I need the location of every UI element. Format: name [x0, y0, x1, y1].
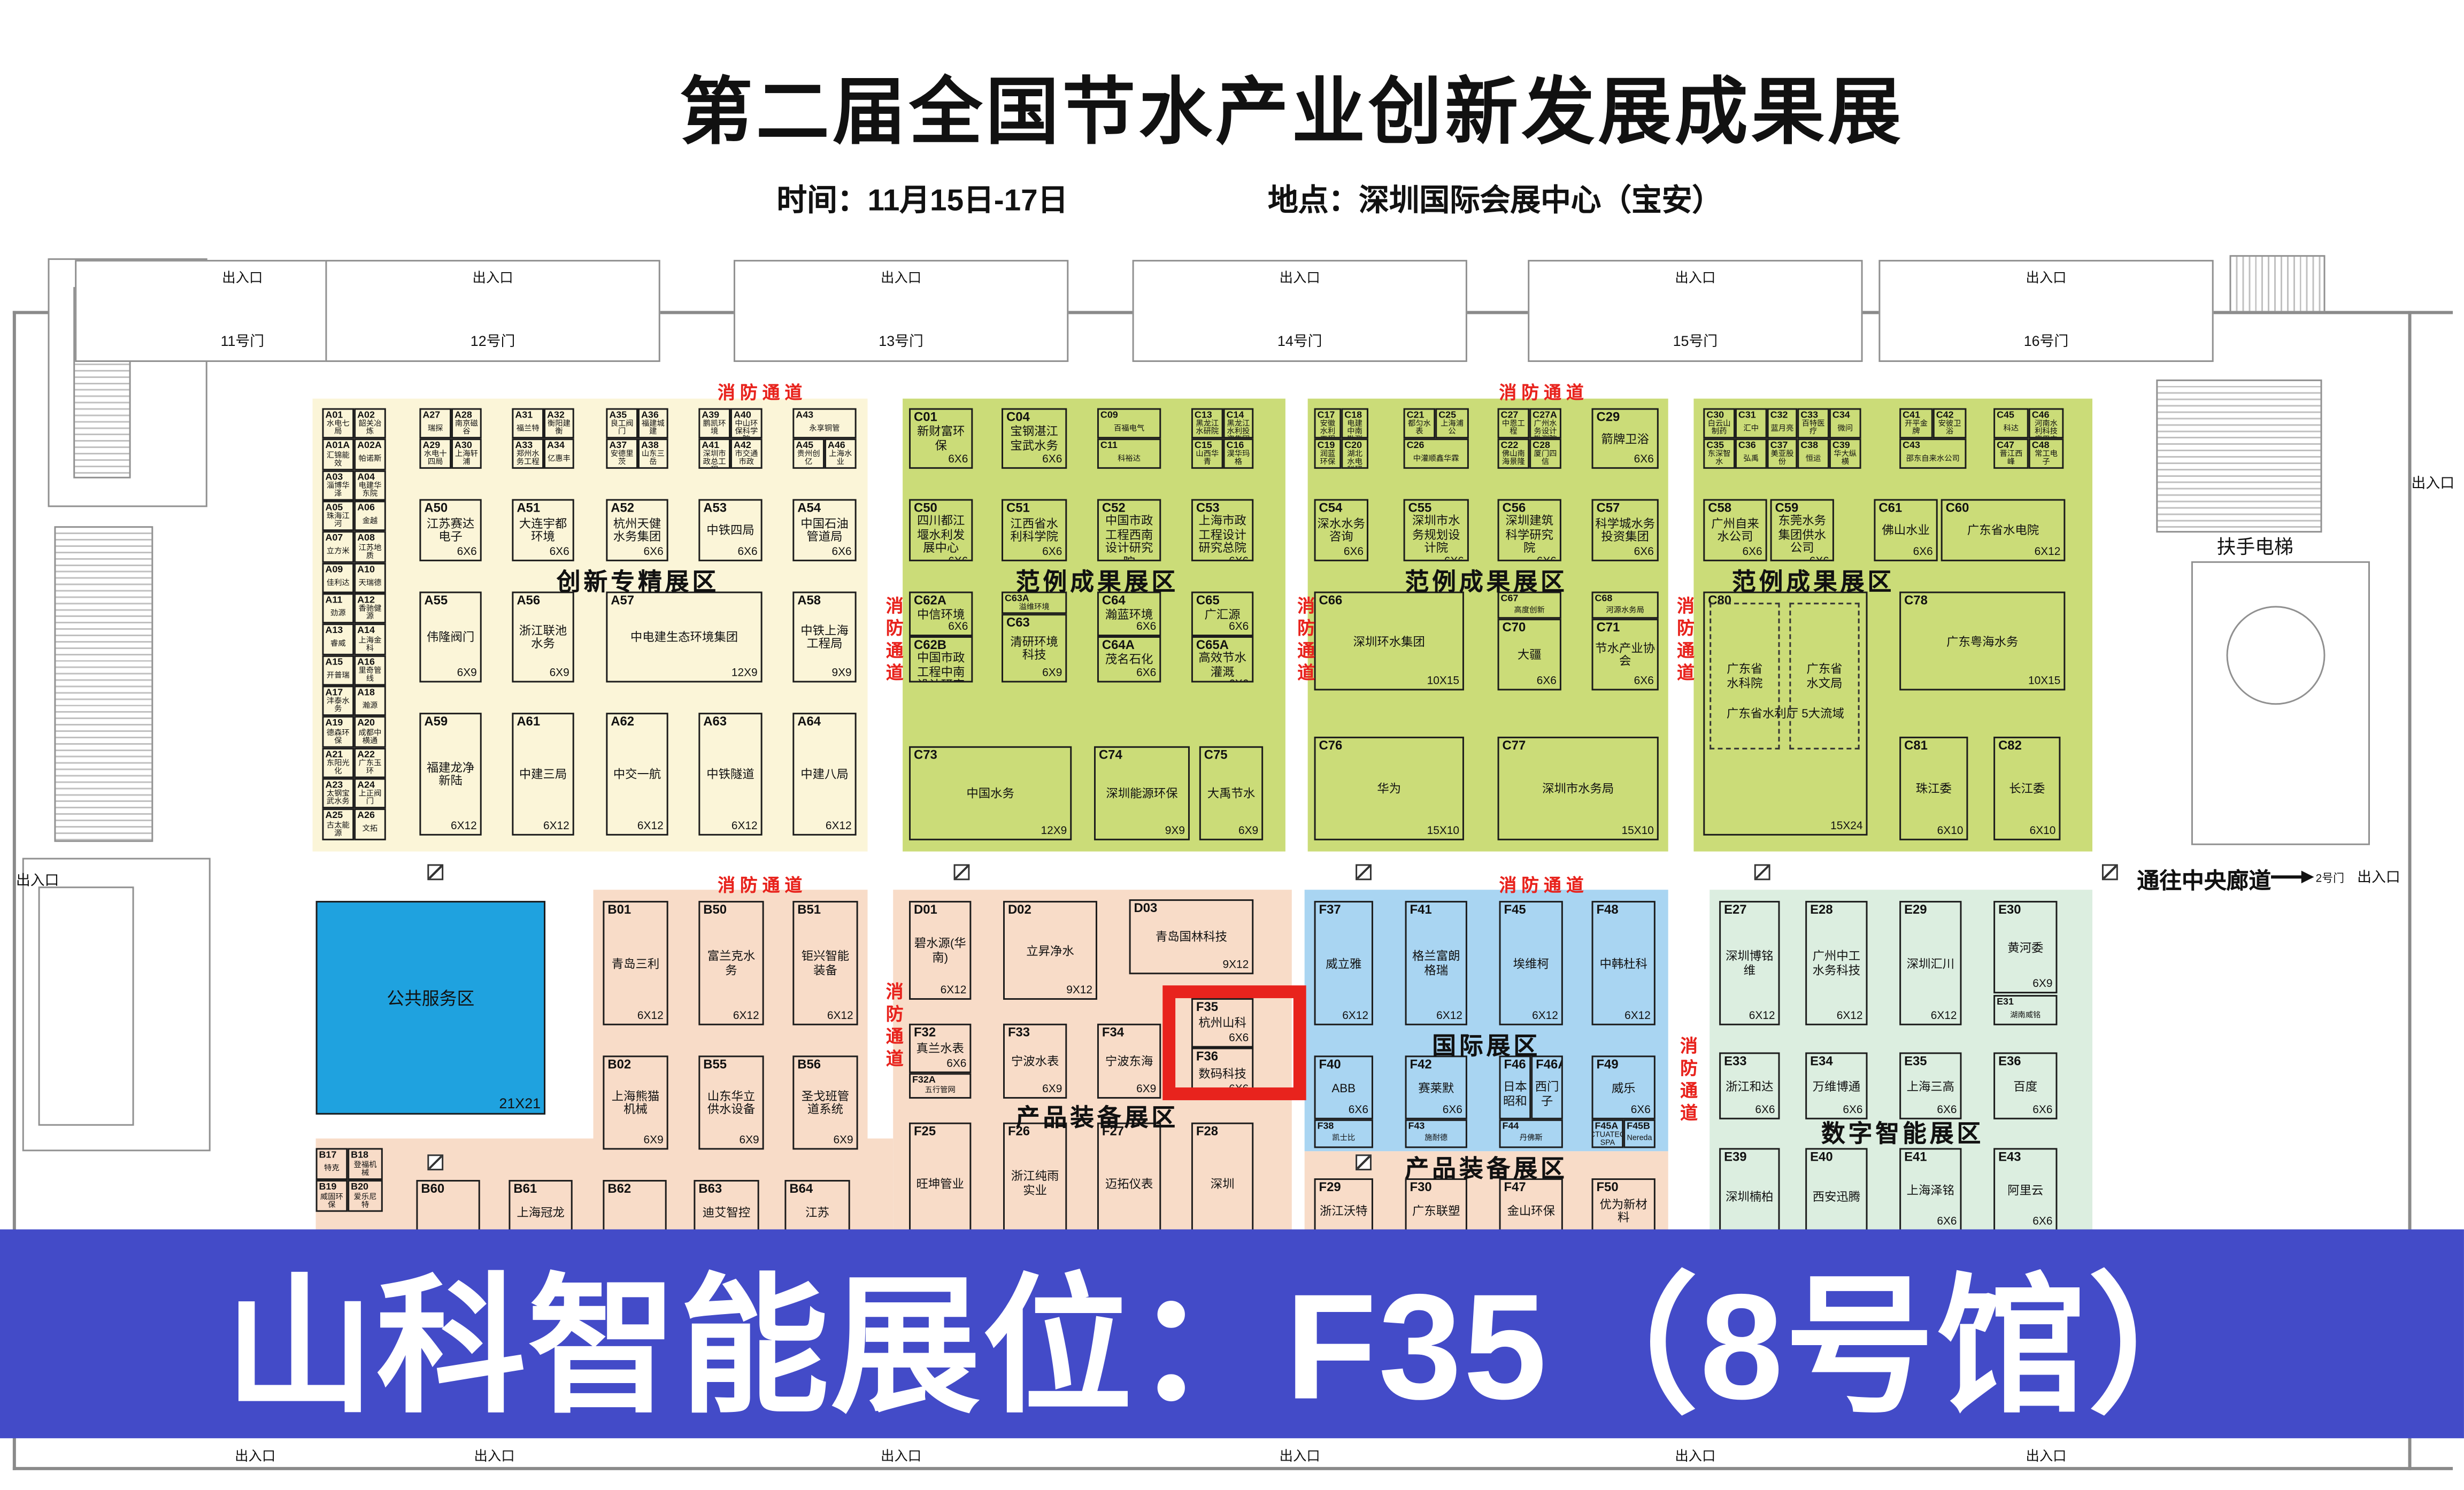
- booth-code: C38: [1799, 440, 1828, 452]
- booth-code: C61: [1875, 501, 1936, 516]
- booth-C81: C81珠江委6X10: [1899, 737, 1968, 840]
- booth-name: 浙江沃特: [1316, 1195, 1372, 1229]
- booth-code: F33: [1005, 1025, 1065, 1040]
- booth-name: 节水产业协会: [1593, 635, 1657, 676]
- booth-C30: C30白云山制药: [1703, 408, 1735, 439]
- booth-code: A34: [545, 440, 573, 452]
- booth-name: 大连宇都环境: [513, 516, 572, 547]
- booth-name: 恒运: [1799, 452, 1828, 467]
- booth-name: 清研环境科技: [1003, 630, 1065, 668]
- booth-size: 6X9: [794, 1136, 856, 1148]
- booth-name: 上海熊猫机械: [604, 1072, 666, 1135]
- booth-E29: E29深圳汇川6X12: [1899, 901, 1961, 1025]
- booth-C04: C04宝钢湛江宝武水务6X6: [1002, 408, 1067, 469]
- booth-A27: A27瑞探: [419, 408, 451, 439]
- booth-code: A26: [356, 810, 384, 822]
- booth-A41: A41深圳市政总工程: [698, 438, 730, 469]
- booth-code: A33: [513, 440, 542, 452]
- booth-C78: C78广东粤海水务10X15: [1899, 592, 2065, 691]
- booth-code: C34: [1831, 410, 1860, 422]
- booth-code: C77: [1499, 738, 1657, 753]
- booth-code: A11: [324, 595, 352, 606]
- booth-A33: A33郑州水务工程: [512, 438, 544, 469]
- booth-code: B51: [794, 902, 856, 917]
- booth-code: C70: [1499, 620, 1560, 635]
- booth-C62B: C62B中国市政工程中南设计研究院6X6: [909, 636, 973, 682]
- booth-code: C76: [1316, 738, 1462, 753]
- booth-name: 东深智水: [1705, 452, 1734, 468]
- dashed-subarea: 广东省 水科院: [1710, 603, 1780, 749]
- booth-name: 科学城水务投资集团: [1593, 516, 1657, 547]
- booth-name: 日本昭和: [1501, 1072, 1530, 1117]
- zone-label: 范例成果展区: [1654, 565, 1973, 598]
- booth-C63: C63清研环境科技6X9: [1002, 614, 1067, 682]
- booth-code: F37: [1316, 902, 1372, 917]
- booth-size: 6X6: [1099, 668, 1159, 681]
- booth-A53: A53中铁四局6X6: [698, 499, 762, 561]
- booth-code: E33: [1721, 1054, 1778, 1069]
- booth-B55: B55山东华立供水设备6X9: [698, 1055, 764, 1149]
- booth-code: C32: [1769, 410, 1796, 422]
- booth-name: 伟隆阀门: [421, 608, 480, 668]
- booth-F29: F29浙江沃特: [1314, 1178, 1373, 1231]
- booth-code: A59: [421, 714, 480, 729]
- booth-name: 广东联塑: [1407, 1195, 1466, 1229]
- booth-name: 五行管网: [911, 1086, 969, 1097]
- booth-code: C22: [1499, 440, 1528, 452]
- booth-name: 常工电子: [2030, 452, 2062, 468]
- booth-code: A32: [545, 410, 573, 422]
- booth-code: C54: [1316, 501, 1367, 516]
- booth-name: 湖北水电科研院: [1343, 452, 1367, 469]
- booth-A23: A23太钢宝武水务: [322, 778, 354, 808]
- fire-lane-label: 消防通道: [880, 596, 906, 685]
- booth-F45B: F45BNereda: [1623, 1120, 1655, 1148]
- exit-label-right-mid: 出入口: [2357, 866, 2400, 886]
- booth-A58: A58中铁上海工程局9X9: [792, 592, 856, 683]
- booth-name: 珠江委: [1901, 753, 1966, 826]
- booth-B20: B20爱乐尼特: [348, 1180, 383, 1212]
- booth-C17: C17安徽水利工程检测中心: [1314, 408, 1342, 439]
- booth-C21: C21都匀水表: [1404, 408, 1436, 439]
- booth-size: 6X12: [1721, 1011, 1778, 1024]
- booth-code: A12: [356, 595, 384, 606]
- booth-B60: B60: [416, 1180, 480, 1231]
- booth-A57: A57中电建生态环境集团12X9: [606, 592, 762, 683]
- booth-size: 6X10: [1901, 826, 1966, 839]
- booth-A08: A08江苏地质: [354, 531, 386, 563]
- booth-C73: C73中国水务12X9: [909, 746, 1072, 840]
- booth-code: C74: [1096, 748, 1188, 763]
- booth-name: 河源水务局: [1593, 605, 1657, 617]
- booth-name: 中恩工程: [1499, 421, 1528, 437]
- booth-name: 瀚源: [356, 699, 384, 714]
- booth-size: 10X15: [1901, 676, 2063, 689]
- booth-C75: C75大禹节水6X9: [1199, 746, 1263, 840]
- booth-code: F38: [1316, 1121, 1372, 1133]
- booth-code: F45B: [1625, 1121, 1654, 1133]
- booth-size: 6X12: [513, 821, 572, 834]
- zone-label: 产品装备展区: [1327, 1151, 1646, 1185]
- booth-name: [604, 1196, 665, 1229]
- booth-F32A: F32A五行管网: [909, 1073, 971, 1099]
- booth-A20: A20成都中横通: [354, 716, 386, 748]
- booth-E27: E27深圳博铭维6X12: [1719, 901, 1780, 1025]
- booth-name: 永享铜管: [794, 421, 854, 437]
- booth-size: 6X10: [1995, 826, 2059, 839]
- booth-name: 韶关冶炼: [356, 421, 384, 437]
- booth-code: A15: [324, 657, 352, 669]
- booth-name: 格兰富朗格瑞: [1407, 917, 1466, 1011]
- booth-name: 鹏凯环境: [700, 421, 729, 437]
- booth-size: 15X10: [1316, 826, 1462, 839]
- booth-code: B20: [349, 1182, 381, 1193]
- booth-size: 6X6: [1003, 454, 1065, 467]
- booth-size: 6X6: [1705, 547, 1765, 560]
- booth-C37: C37美亚股份: [1767, 438, 1798, 469]
- booth-C77: C77深圳市水务局15X10: [1498, 737, 1659, 840]
- booth-size: 6X12: [1807, 1011, 1866, 1024]
- booth-name: 上海泽铭: [1901, 1164, 1960, 1216]
- booth-name: 浙江和达: [1721, 1069, 1778, 1105]
- booth-code: C04: [1003, 410, 1065, 425]
- booth-B50: B50富兰克水务6X12: [698, 901, 764, 1025]
- schedule-label: 时间：11月15日-17日: [776, 177, 1068, 220]
- booth-name: 深圳环水集团: [1316, 608, 1462, 676]
- highlight-box-F35: [1162, 985, 1306, 1100]
- booth-A18: A18瀚源: [354, 685, 386, 716]
- booth-name: 福建城建: [640, 421, 667, 437]
- booth-C15: C15山西华青: [1191, 438, 1223, 469]
- booth-A07: A07立方米: [322, 531, 354, 563]
- booth-name: 青岛国林科技: [1131, 916, 1252, 960]
- booth-name: 施耐德: [1407, 1132, 1466, 1146]
- booth-code: F43: [1407, 1121, 1466, 1133]
- booth-size: 6X12: [1593, 1011, 1654, 1024]
- booth-code: A17: [324, 687, 352, 699]
- booth-E33: E33浙江和达6X6: [1719, 1052, 1780, 1119]
- booth-size: 6X9: [604, 1136, 666, 1148]
- booth-name: 深圳: [1193, 1139, 1252, 1230]
- booth-name: 上海浦公: [1437, 421, 1467, 437]
- booth-name: 丹佛斯: [1501, 1132, 1561, 1146]
- booth-F43: F43施耐德3X6: [1405, 1120, 1467, 1148]
- booth-name: 立方米: [324, 544, 352, 561]
- booth-name: 爱乐尼特: [349, 1193, 381, 1210]
- booth-code: A41: [700, 440, 729, 452]
- booth-name: 广东省水电院: [1943, 516, 2064, 547]
- booth-F26: F26浙江纯雨实业: [1003, 1123, 1067, 1231]
- booth-A12: A12香驰健源: [354, 593, 386, 623]
- booth-name: 山西华青: [1193, 452, 1222, 468]
- booth-C51: C51江西省水利科学院6X6: [1002, 499, 1067, 561]
- booth-code: C50: [911, 501, 971, 516]
- booth-C14: C14黑龙江水利投资集团: [1223, 408, 1254, 439]
- booth-code: A55: [421, 593, 480, 608]
- exit-label-left: 出入口: [16, 869, 59, 890]
- booth-name: 中铁上海工程局: [794, 608, 854, 668]
- booth-code: A53: [700, 501, 760, 516]
- booth-name: 阿里云: [1995, 1164, 2055, 1216]
- booth-E30: E30黄河委6X9: [1993, 901, 2057, 993]
- booth-C13: C13黑龙江水研院: [1191, 408, 1223, 439]
- booth-A30: A30上海轩浦: [451, 438, 482, 469]
- booth-code: A02A: [356, 440, 384, 452]
- booth-name: 大疆: [1499, 635, 1560, 676]
- booth-B63: B63迪艾智控: [694, 1180, 759, 1231]
- booth-name: 钜兴智能装备: [794, 917, 856, 1011]
- booth-code: A30: [453, 440, 480, 452]
- booth-code: C13: [1193, 410, 1222, 422]
- entrance-label-top: 出入口: [1265, 268, 1335, 287]
- booth-name: 埃维柯: [1501, 917, 1561, 1011]
- booth-name: 白云山制药: [1705, 421, 1734, 437]
- door-marker-icon: [2102, 864, 2118, 881]
- booth-B56: B56圣戈班管道系统6X9: [792, 1055, 858, 1149]
- booth-C22: C22佛山南海景隆: [1498, 438, 1530, 469]
- booth-name: 古太能源: [324, 822, 352, 839]
- banner-text: 山科智能展位：F35（8号馆）: [225, 1225, 2239, 1442]
- booth-code: C19: [1316, 440, 1340, 452]
- booth-A31: A31福兰特: [512, 408, 544, 439]
- booth-code: B64: [786, 1182, 848, 1196]
- booth-A04: A04电建华东院: [354, 470, 386, 501]
- booth-C38: C38恒运: [1797, 438, 1829, 469]
- booth-code: E43: [1995, 1149, 2055, 1164]
- booth-code: A50: [421, 501, 480, 516]
- booth-name: 汇锦能效: [324, 452, 352, 469]
- booth-code: A61: [513, 714, 572, 729]
- booth-C58: C58广州自来水公司6X6: [1703, 499, 1767, 561]
- booth-size: 6X6: [1193, 622, 1252, 635]
- booth-code: C42: [1935, 410, 1965, 422]
- booth-name: 深圳市水务规划设计院: [1405, 516, 1467, 556]
- booth-name: 上海市政工程设计研究总院: [1193, 516, 1252, 556]
- booth-name: 深圳建筑科学研究院: [1499, 516, 1560, 556]
- booth-C64A: C64A茂名石化6X6: [1097, 636, 1161, 682]
- booth-name: 高效节水灌溉: [1193, 653, 1252, 680]
- entrance-label-top: 出入口: [2011, 268, 2081, 287]
- booth-code: A01A: [324, 440, 352, 452]
- booth-size: 12X9: [607, 668, 760, 681]
- exit-label-right-top: 出入口: [2412, 472, 2455, 493]
- booth-code: C37: [1769, 440, 1796, 452]
- booth-name: 中国市政工程西南设计研究院: [1099, 516, 1159, 561]
- booth-E36: E36百度6X6: [1993, 1052, 2057, 1119]
- exhibition-floor-plan-poster: 第二届全国节水产业创新发展成果展 时间：11月15日-17日 地点：深圳国际会展…: [0, 0, 2464, 1489]
- booth-C48: C48常工电子: [2029, 438, 2064, 469]
- booth-size: 9X12: [1005, 985, 1096, 998]
- booth-name: 中电建生态环境集团: [607, 608, 760, 668]
- booth-code: A58: [794, 593, 854, 608]
- booth-code: A16: [356, 657, 384, 669]
- booth-size: 6X9: [700, 1136, 762, 1148]
- booth-size: 6X6: [1003, 547, 1065, 560]
- booth-code: A24: [356, 779, 384, 791]
- booth-code: C16: [1225, 440, 1252, 452]
- booth-name: 旺坤管业: [911, 1139, 969, 1230]
- venue-label: 地点：深圳国际会展中心（宝安）: [1268, 177, 1722, 220]
- booth-name: 淏华玛格: [1225, 452, 1252, 468]
- booth-code: A23: [324, 779, 352, 791]
- booth-B17: B17特克: [316, 1148, 348, 1180]
- booth-code: B62: [604, 1182, 665, 1196]
- booth-name: 威固环保: [318, 1193, 346, 1210]
- entrance-label-top: 出入口: [207, 268, 278, 287]
- booth-code: E29: [1901, 902, 1960, 917]
- booth-name: 深圳楠柏: [1721, 1164, 1778, 1229]
- booth-A62: A62中交一航6X12: [606, 713, 668, 836]
- booth-C53: C53上海市政工程设计研究总院6X6: [1191, 499, 1253, 561]
- booth-name: 广州中工水务科技: [1807, 917, 1866, 1011]
- booth-C57: C57科学城水务投资集团6X6: [1592, 499, 1659, 561]
- booth-A16: A16里奇管线: [354, 655, 386, 686]
- booth-C29: C29箭牌卫浴6X6: [1592, 408, 1659, 469]
- booth-name: 文拓: [356, 822, 384, 839]
- booth-code: C21: [1405, 410, 1434, 422]
- booth-F28: F28深圳: [1191, 1123, 1253, 1231]
- booth-C45: C45科达: [1993, 408, 2029, 439]
- gate-2-label: 2号门: [2316, 870, 2344, 886]
- booth-C26: C26中灌顺鑫华霖: [1404, 438, 1469, 469]
- booth-F45A: F45AACTUATECH SPA: [1592, 1120, 1624, 1148]
- booth-name: 西门子: [1533, 1072, 1561, 1117]
- booth-size: 6X6: [1593, 676, 1657, 689]
- booth-name: 睿威: [324, 637, 352, 654]
- booth-name: 中建三局: [513, 729, 572, 821]
- booth-A26: A26文拓: [354, 808, 386, 840]
- booth-E39: E39深圳楠柏: [1719, 1148, 1780, 1231]
- door-marker-icon: [1754, 864, 1770, 881]
- booth-name: 微问: [1831, 421, 1860, 437]
- booth-code: A43: [794, 410, 854, 422]
- booth-name: 东莞水务集团供水公司: [1772, 516, 1832, 556]
- booth-name: 上正阀门: [356, 791, 384, 807]
- booth-code: E34: [1807, 1054, 1866, 1069]
- booth-code: C57: [1593, 501, 1657, 516]
- booth-name: 江苏地质: [356, 544, 384, 561]
- booth-C55: C55深圳市水务规划设计院6X6: [1404, 499, 1469, 561]
- fire-lane-label: 消防通道: [880, 982, 906, 1071]
- booth-code: E27: [1721, 902, 1778, 917]
- booth-size: 6X6: [513, 547, 572, 560]
- booth-name: 新财富环保: [911, 425, 971, 455]
- booth-A59: A59福建龙净新陆6X12: [419, 713, 481, 836]
- booth-code: F32A: [911, 1075, 969, 1086]
- booth-code: C64A: [1099, 638, 1159, 653]
- zone-label: 范例成果展区: [938, 565, 1257, 598]
- booth-name: 成都中横通: [356, 729, 384, 746]
- booth-size: 6X12: [700, 821, 760, 834]
- booth-B01: B01青岛三利6X12: [603, 901, 668, 1025]
- booth-name: 深圳市水务局: [1499, 753, 1657, 826]
- booth-name: 安德里茨: [607, 452, 636, 468]
- booth-name: 深圳市政总工程: [700, 452, 729, 469]
- booth-A01: A01水电七局: [322, 408, 354, 439]
- booth-A36: A36福建城建: [638, 408, 668, 439]
- booth-code: A39: [700, 410, 729, 422]
- booth-name: 迈拓仪表: [1099, 1139, 1159, 1230]
- booth-name: 帕诺斯: [356, 452, 384, 469]
- booth-code: C26: [1405, 440, 1467, 452]
- booth-B18: B18登福机械: [348, 1148, 383, 1180]
- booth-size: 6X6: [794, 547, 854, 560]
- booth-code: C41: [1901, 410, 1931, 422]
- booth-name: 邵东自来水公司: [1901, 452, 1965, 467]
- booth-A15: A15开普瑞: [322, 655, 354, 686]
- booth-size: 6X9: [1099, 1084, 1159, 1097]
- booth-code: B17: [318, 1149, 346, 1161]
- booth-code: A51: [513, 501, 572, 516]
- booth-name: 威乐: [1593, 1072, 1654, 1105]
- booth-size: 6X6: [1593, 1105, 1654, 1118]
- booth-C62A: C62A中信环境6X6: [909, 592, 973, 637]
- booth-C32: C32蓝月亮: [1767, 408, 1798, 439]
- booth-name: 黄河委: [1995, 917, 2055, 979]
- gate-label-12号门: 12号门: [451, 330, 534, 351]
- booth-A61: A61中建三局6X12: [512, 713, 574, 836]
- booth-name: 立昇净水: [1005, 917, 1096, 985]
- booth-name: 上海三高: [1901, 1069, 1960, 1105]
- booth-A22: A22广东玉环: [354, 748, 386, 778]
- booth-name: 电建华东院: [356, 484, 384, 500]
- booth-name: 中铁四局: [700, 516, 760, 547]
- booth-size: 6X6: [1593, 454, 1657, 467]
- booth-name: 亿惠丰: [545, 452, 573, 467]
- booth-E28: E28广州中工水务科技6X12: [1805, 901, 1867, 1025]
- booth-name: 凯士比: [1316, 1132, 1372, 1146]
- booth-code: A18: [356, 687, 384, 699]
- booth-name: 深水水务咨询: [1316, 516, 1367, 547]
- booth-code: F45A: [1593, 1121, 1622, 1133]
- booth-name: 美亚股份: [1769, 452, 1796, 468]
- booth-code: A38: [640, 440, 667, 452]
- booth-name: 溢维环境: [1003, 605, 1065, 613]
- booth-name: 中国水务: [911, 763, 1070, 826]
- booth-name: 长江委: [1995, 753, 2059, 826]
- booth-code: A54: [794, 501, 854, 516]
- booth-C82: C82长江委6X10: [1993, 737, 2060, 840]
- booth-code: C81: [1901, 738, 1966, 753]
- booth-F30: F30广东联塑: [1405, 1178, 1467, 1231]
- booth-F47: F47金山环保: [1499, 1178, 1563, 1231]
- booth-code: C20: [1343, 440, 1367, 452]
- booth-name: 科裕达: [1099, 452, 1159, 467]
- booth-A55: A55伟隆阀门6X9: [419, 592, 481, 683]
- door-marker-icon: [427, 1154, 443, 1170]
- booth-name: 四川都江堰水利发展中心: [911, 516, 971, 556]
- booth-code: A19: [324, 717, 352, 729]
- booth-name: 中交一航: [607, 729, 666, 821]
- booth-C27: C27中恩工程: [1498, 408, 1530, 439]
- booth-F46: F46日本昭和: [1499, 1055, 1531, 1119]
- booth-code: F45: [1501, 902, 1561, 917]
- booth-A13: A13睿威: [322, 623, 354, 655]
- booth-size: 6X12: [794, 1011, 856, 1024]
- booth-code: A37: [607, 440, 636, 452]
- booth-name: 宝钢湛江宝武水务: [1003, 425, 1065, 455]
- booth-name: 德森环保: [324, 729, 352, 746]
- booth-A10: A10天瑞德: [354, 563, 386, 593]
- booth-code: A25: [324, 810, 352, 822]
- booth-name: 金山环保: [1501, 1195, 1561, 1229]
- booth-size: 6X12: [700, 1011, 762, 1024]
- booth-code: F34: [1099, 1025, 1159, 1040]
- booth-C19: C19润蓝环保: [1314, 438, 1342, 469]
- booth-code: F41: [1407, 902, 1466, 917]
- booth-D02: D02立昇净水9X12: [1003, 901, 1097, 1000]
- booth-A09: A09佳利达: [322, 563, 354, 593]
